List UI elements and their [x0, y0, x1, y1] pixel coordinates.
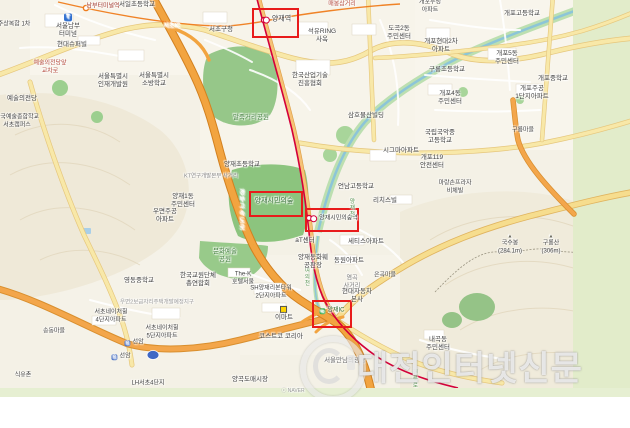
map-label-text: ⓒ NAVER — [281, 388, 304, 394]
map-label: 요선암 — [111, 353, 130, 361]
map-label-text: 구룡마을 — [512, 127, 534, 135]
map-label-text: 예술의전당앞 — [33, 61, 66, 69]
map-label: 양재1동주민센터 — [171, 193, 195, 209]
map-label-text: 본사 — [342, 296, 372, 304]
map-label-text: 서일초등학교 — [119, 1, 155, 9]
map-label: ▲국수봉(284.1m) — [498, 235, 522, 256]
map-label-text: 영동중학교 — [124, 277, 154, 285]
map-label-text: 서울특별시 — [139, 72, 169, 80]
map-label-text: 개포4동 — [438, 90, 462, 98]
map-label-text: 안전센터 — [420, 162, 444, 170]
map-label-text: 이마트 — [275, 314, 293, 322]
map-label-text: 양재IC — [327, 307, 344, 315]
map-label: 석유RING사옥 — [308, 28, 336, 44]
map-label: 삼호물산빌딩 — [348, 112, 384, 120]
map-label-text: 개포중학교 — [538, 75, 568, 83]
map-label: 경부고속도로 — [236, 189, 244, 231]
map-label: 서초네이처힐4단지아파트 — [94, 310, 127, 325]
map-label: 서울특별시인재개발원 — [98, 73, 128, 89]
map-label-text: KT연구개발본부 사거리 — [184, 174, 238, 181]
map-label: 매봉삼거리 — [328, 1, 356, 9]
map-label-text: 서초네이처힐 — [94, 310, 127, 318]
tollgate-icon: 요 — [124, 340, 130, 346]
map-label: aT센터 — [295, 237, 315, 245]
map-label-text: 말죽거리공원 — [233, 114, 269, 122]
map-label-text: 우면주공 — [153, 208, 177, 216]
map-label: The-K호텔서울 — [232, 272, 254, 287]
map-label-text: 염곡 — [344, 276, 361, 284]
map-label: ⓒ NAVER — [281, 388, 304, 394]
screenshot-root: 대전인터넷신문 남부터미널역양재역양재시민의숲양재시민의숲역IC양재IC서초IC… — [0, 0, 630, 428]
map-label-text: (306m) — [541, 248, 560, 256]
interchange-icon: IC — [319, 308, 325, 314]
mart-icon — [280, 306, 287, 313]
map-label: 송동마을 — [43, 328, 65, 336]
map-label: 요선암 — [124, 339, 143, 347]
map-label-text: 구룡초등학교 — [429, 66, 465, 74]
map-label: 우면주공아파트 — [153, 208, 177, 224]
map-label-text: (284.1m) — [498, 248, 522, 256]
map-label-text: 개포현대2차 — [424, 38, 458, 46]
map-label-text: 개포우성 — [419, 0, 441, 7]
map-label-text: 삼호물산빌딩 — [348, 112, 384, 120]
map-label: 양재동화훼공판장 — [298, 254, 328, 270]
mountain-peak-icon: ▲ — [498, 235, 522, 240]
map-label-text: 주민센터 — [387, 33, 411, 41]
map-label-text: 매봉삼거리 — [328, 1, 356, 9]
subway-station-icon — [263, 17, 270, 24]
map-label-text: 공원 — [213, 256, 237, 264]
map-label-text: 개포119 — [420, 154, 444, 162]
map-label-text: 주상복합 1차 — [0, 21, 30, 29]
map-label: 양재시민의숲 — [255, 198, 294, 207]
map-label-text: 시그마아파트 — [383, 147, 419, 155]
map-label: 서일초등학교 — [119, 1, 155, 9]
map-label-text: 양재천 — [348, 198, 355, 218]
map-label-text: 서초네이처힐 — [145, 326, 178, 334]
bottom-margin — [0, 397, 630, 428]
map-label-text: 식유촌 — [15, 372, 32, 380]
map-label-text: aT센터 — [295, 237, 315, 245]
map-label-text: 선암 — [133, 339, 144, 347]
map-label-text: 인재개발원 — [98, 81, 128, 89]
map-label-text: 예술의전당 — [7, 95, 37, 103]
map-label-text: 서울남부 — [56, 22, 80, 30]
expressway-shield-icon — [147, 351, 159, 360]
map-label-text: 국립국악중 — [425, 129, 455, 137]
map-label: 문화예술공원 — [213, 248, 237, 264]
map-label-text: 양곡도매시장 — [232, 376, 268, 384]
map-label-text: LH서초4단지 — [131, 380, 164, 388]
map-label: 현대자동차본사 — [342, 288, 372, 304]
map-label: KT연구개발본부 사거리 — [184, 174, 238, 181]
subway-station-icon — [310, 216, 317, 223]
map-label: 남부터미널역 — [86, 3, 119, 11]
map-label-text: 2단지아파트 — [250, 293, 291, 301]
map-label: 구룡마을 — [512, 127, 534, 135]
map-label: 양재역 — [263, 16, 291, 25]
map-label: 동원아파트 — [334, 257, 364, 265]
map-label-text: 주민센터 — [495, 58, 519, 66]
map-label-text: 송동마을 — [43, 328, 65, 336]
map-label-text: 서초구청 — [209, 26, 233, 34]
map-label: T서울남부터미널 — [56, 13, 80, 38]
map-label-text: 남부터미널역 — [86, 3, 119, 11]
map-label-text: 총연합회 — [180, 280, 216, 288]
map-canvas — [0, 0, 630, 397]
map-label: ▲구룡산(306m) — [541, 235, 560, 256]
map-label: 서울특별시소방학교 — [139, 72, 169, 88]
map-label-text: 사옥 — [308, 36, 336, 44]
map-label-text: 세티스아파트 — [348, 238, 384, 246]
watermark-text: 대전인터넷신문 — [357, 341, 583, 390]
map-label-text: 여의천 — [303, 267, 310, 287]
map-label: 예술의전당 — [7, 95, 37, 103]
map-label-text: 양재시민의숲 — [255, 198, 294, 207]
map-label-text: SH양재리본타워 — [250, 286, 291, 294]
map-label-text: 한국예술종합학교 — [0, 115, 39, 123]
map-label-text: 4단지아파트 — [94, 317, 127, 325]
map-label-text: 서초IC — [163, 23, 180, 31]
map-label-text: 교차로 — [33, 68, 66, 76]
map-label-text: 주민센터 — [438, 98, 462, 106]
map-label: 개포중학교 — [538, 75, 568, 83]
map-label: 국립국악중고등학교 — [425, 129, 455, 145]
map-label-text: The-K — [232, 272, 254, 280]
bus-terminal-icon: T — [64, 13, 72, 21]
map-label: 식유촌 — [15, 372, 32, 380]
map-label: 개포고등학교 — [504, 10, 540, 18]
map-label-text: 아파트 — [419, 7, 441, 15]
map-label-text: 양재역 — [272, 16, 291, 25]
tollgate-icon: 요 — [111, 354, 117, 360]
map-image: 대전인터넷신문 남부터미널역양재역양재시민의숲양재시민의숲역IC양재IC서초IC… — [0, 0, 630, 397]
map-label-text: 공판장 — [298, 262, 328, 270]
map-label: 리치스빌 — [373, 197, 397, 205]
map-label-text: 은곡마을 — [374, 272, 396, 280]
map-label: 주상복합 1차 — [0, 21, 30, 29]
map-label: 개포주공1단지아파트 — [515, 85, 549, 101]
map-label-text: 개포고등학교 — [504, 10, 540, 18]
map-label-text: 터미널 — [56, 31, 80, 39]
map-label: 서초구청 — [209, 26, 233, 34]
map-label-text: 개포주공 — [515, 85, 549, 93]
map-label: 영동중학교 — [124, 277, 154, 285]
map-label: 구룡초등학교 — [429, 66, 465, 74]
map-label: 여의천 — [303, 267, 310, 287]
map-label-text: 현대슈퍼빌 — [57, 41, 87, 49]
map-label: 은곡마을 — [374, 272, 396, 280]
map-label: 서초네이처힐5단지아파트 — [145, 326, 178, 341]
map-label: 세티스아파트 — [348, 238, 384, 246]
map-label: LH서초4단지 — [131, 380, 164, 388]
map-label-text: 마랑손프라자 — [438, 181, 471, 189]
map-label: 현대슈퍼빌 — [57, 41, 87, 49]
map-label-text: 국수봉 — [498, 241, 522, 249]
map-label: 양곡도매시장 — [232, 376, 268, 384]
map-label: 개포4동주민센터 — [438, 90, 462, 106]
map-label-text: 서초캠퍼스 — [0, 122, 39, 130]
map-label-text: 한국교원단체 — [180, 272, 216, 280]
map-label-text: 현대자동차 — [342, 288, 372, 296]
map-label: 한국교원단체총연합회 — [180, 272, 216, 288]
map-label: 말죽거리공원 — [233, 114, 269, 122]
map-label-text: 1단지아파트 — [515, 93, 549, 101]
map-label: 양재천 — [348, 198, 355, 218]
map-label-text: 석유RING — [308, 28, 336, 36]
map-label: 이마트 — [275, 306, 293, 322]
map-label: 서초IC — [163, 23, 180, 31]
map-label: IC양재IC — [319, 307, 344, 315]
mountain-peak-icon: ▲ — [541, 235, 560, 240]
map-label-text: 언남고등학교 — [338, 183, 374, 191]
map-label-text: 양재1동 — [171, 193, 195, 201]
map-label: 개포5동주민센터 — [495, 50, 519, 66]
map-label-text: 소방학교 — [139, 80, 169, 88]
map-label-text: 우면2보금자리주택개발예정지구 — [120, 300, 194, 307]
map-label-text: 코스트코 코리아 — [259, 333, 303, 341]
map-label: 한국예술종합학교서초캠퍼스 — [0, 115, 39, 130]
map-label-text: 5단지아파트 — [145, 333, 178, 341]
map-label-text: 문화예술 — [213, 248, 237, 256]
map-label: 마랑손프라자비체빌 — [438, 181, 471, 196]
map-label: 예술의전당앞교차로 — [33, 61, 66, 76]
map-label-text: 진흥협회 — [292, 80, 328, 88]
map-label-text: 서울특별시 — [98, 73, 128, 81]
map-label-text: 구룡산 — [541, 241, 560, 249]
map-label-text: 경부고속도로 — [236, 189, 244, 231]
map-label-text: 선암 — [120, 353, 131, 361]
map-label-text: 리치스빌 — [373, 197, 397, 205]
map-label: 코스트코 코리아 — [259, 333, 303, 341]
map-label-text: 아파트 — [424, 46, 458, 54]
map-label: 언남고등학교 — [338, 183, 374, 191]
map-label: 양재초등학교 — [224, 161, 260, 169]
map-label: 개포현대2차아파트 — [424, 38, 458, 54]
map-label-text: 고등학교 — [425, 137, 455, 145]
map-label: SH양재리본타워2단지아파트 — [250, 286, 291, 301]
map-label: 한국산업기술진흥협회 — [292, 72, 328, 88]
map-label: 개포우성아파트 — [419, 0, 441, 15]
map-label-text: 비체빌 — [438, 188, 471, 196]
map-label: 개포119안전센터 — [420, 154, 444, 170]
map-label: 시그마아파트 — [383, 147, 419, 155]
map-label-text: 개포5동 — [495, 50, 519, 58]
map-label-text: 동원아파트 — [334, 257, 364, 265]
map-label: 우면2보금자리주택개발예정지구 — [120, 300, 194, 307]
map-label-text: 양재동화훼 — [298, 254, 328, 262]
map-label-text: 양재초등학교 — [224, 161, 260, 169]
map-label-text: 한국산업기술 — [292, 72, 328, 80]
map-label: 도곡2동주민센터 — [387, 25, 411, 41]
map-label-text: 아파트 — [153, 216, 177, 224]
map-label-text: 도곡2동 — [387, 25, 411, 33]
